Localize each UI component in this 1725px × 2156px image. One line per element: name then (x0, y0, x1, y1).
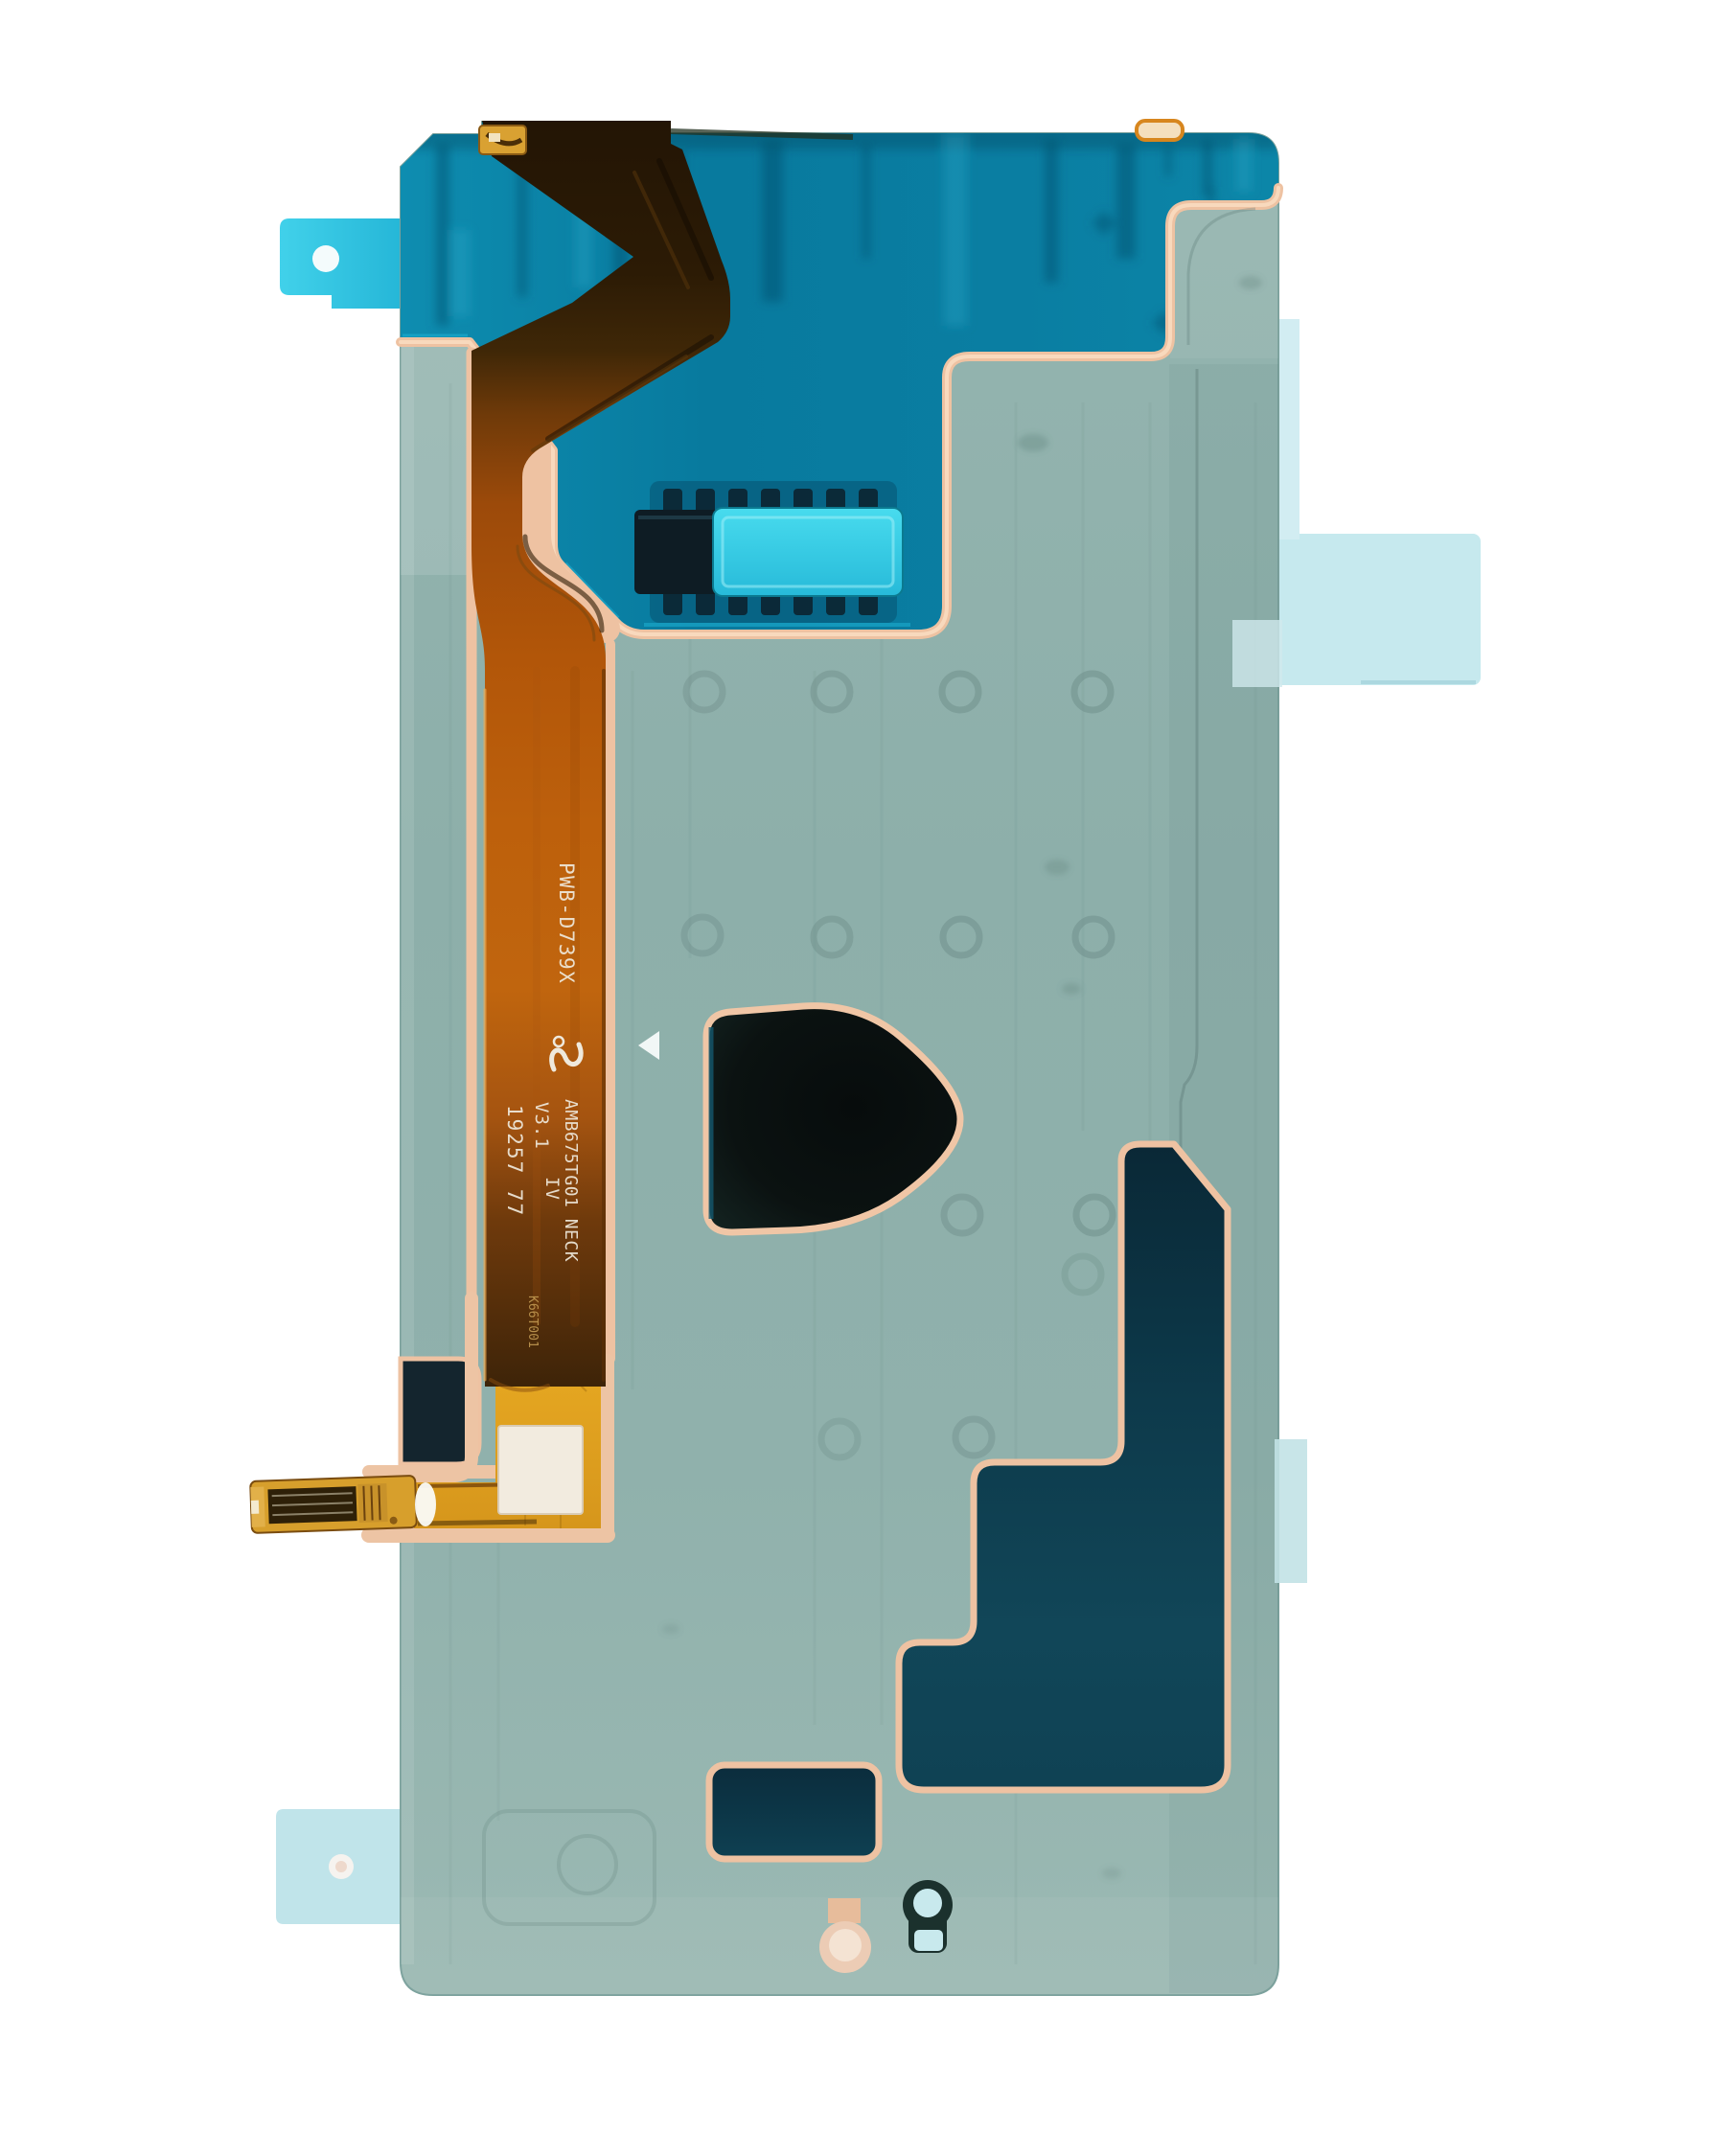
marking-grade: IV (541, 1177, 563, 1201)
flex-connector-top (479, 126, 526, 154)
digitizer-connector-window (713, 508, 903, 596)
tab-hole-left (312, 245, 339, 272)
alignment-keyhole (903, 1880, 953, 1953)
marking-part-number: AMB675TG01 NECK (561, 1099, 581, 1262)
keyhole-square (914, 1930, 943, 1951)
flex-gap-highlight (415, 1482, 436, 1526)
pull-tab-right-root (1232, 620, 1282, 687)
marking-version: V3.1 (531, 1102, 552, 1150)
edge-gold-mark (1137, 121, 1183, 140)
display-connector-assembly (634, 481, 903, 623)
label-sticker (498, 1426, 583, 1514)
flex-connector-plug (250, 1476, 417, 1533)
connector-socket (634, 510, 721, 594)
tab-hole-center (335, 1861, 347, 1872)
edge-strip-right (1275, 1439, 1307, 1583)
product-photo-canvas: PWB-D739X AMB675TG01 NECK V3.1 IV 19257 … (0, 0, 1725, 2156)
pull-tab-left (280, 218, 412, 309)
marking-serial: K66T001 (525, 1296, 540, 1348)
pull-tab-bottom (276, 1809, 412, 1924)
small-cutout (709, 1765, 879, 1859)
keyhole-circle (913, 1889, 942, 1917)
marking-batch: 19257 77 (503, 1105, 526, 1217)
marking-model: PWB-D739X (555, 862, 578, 984)
adhesive-film-illustration: PWB-D739X AMB675TG01 NECK V3.1 IV 19257 … (0, 0, 1725, 2156)
